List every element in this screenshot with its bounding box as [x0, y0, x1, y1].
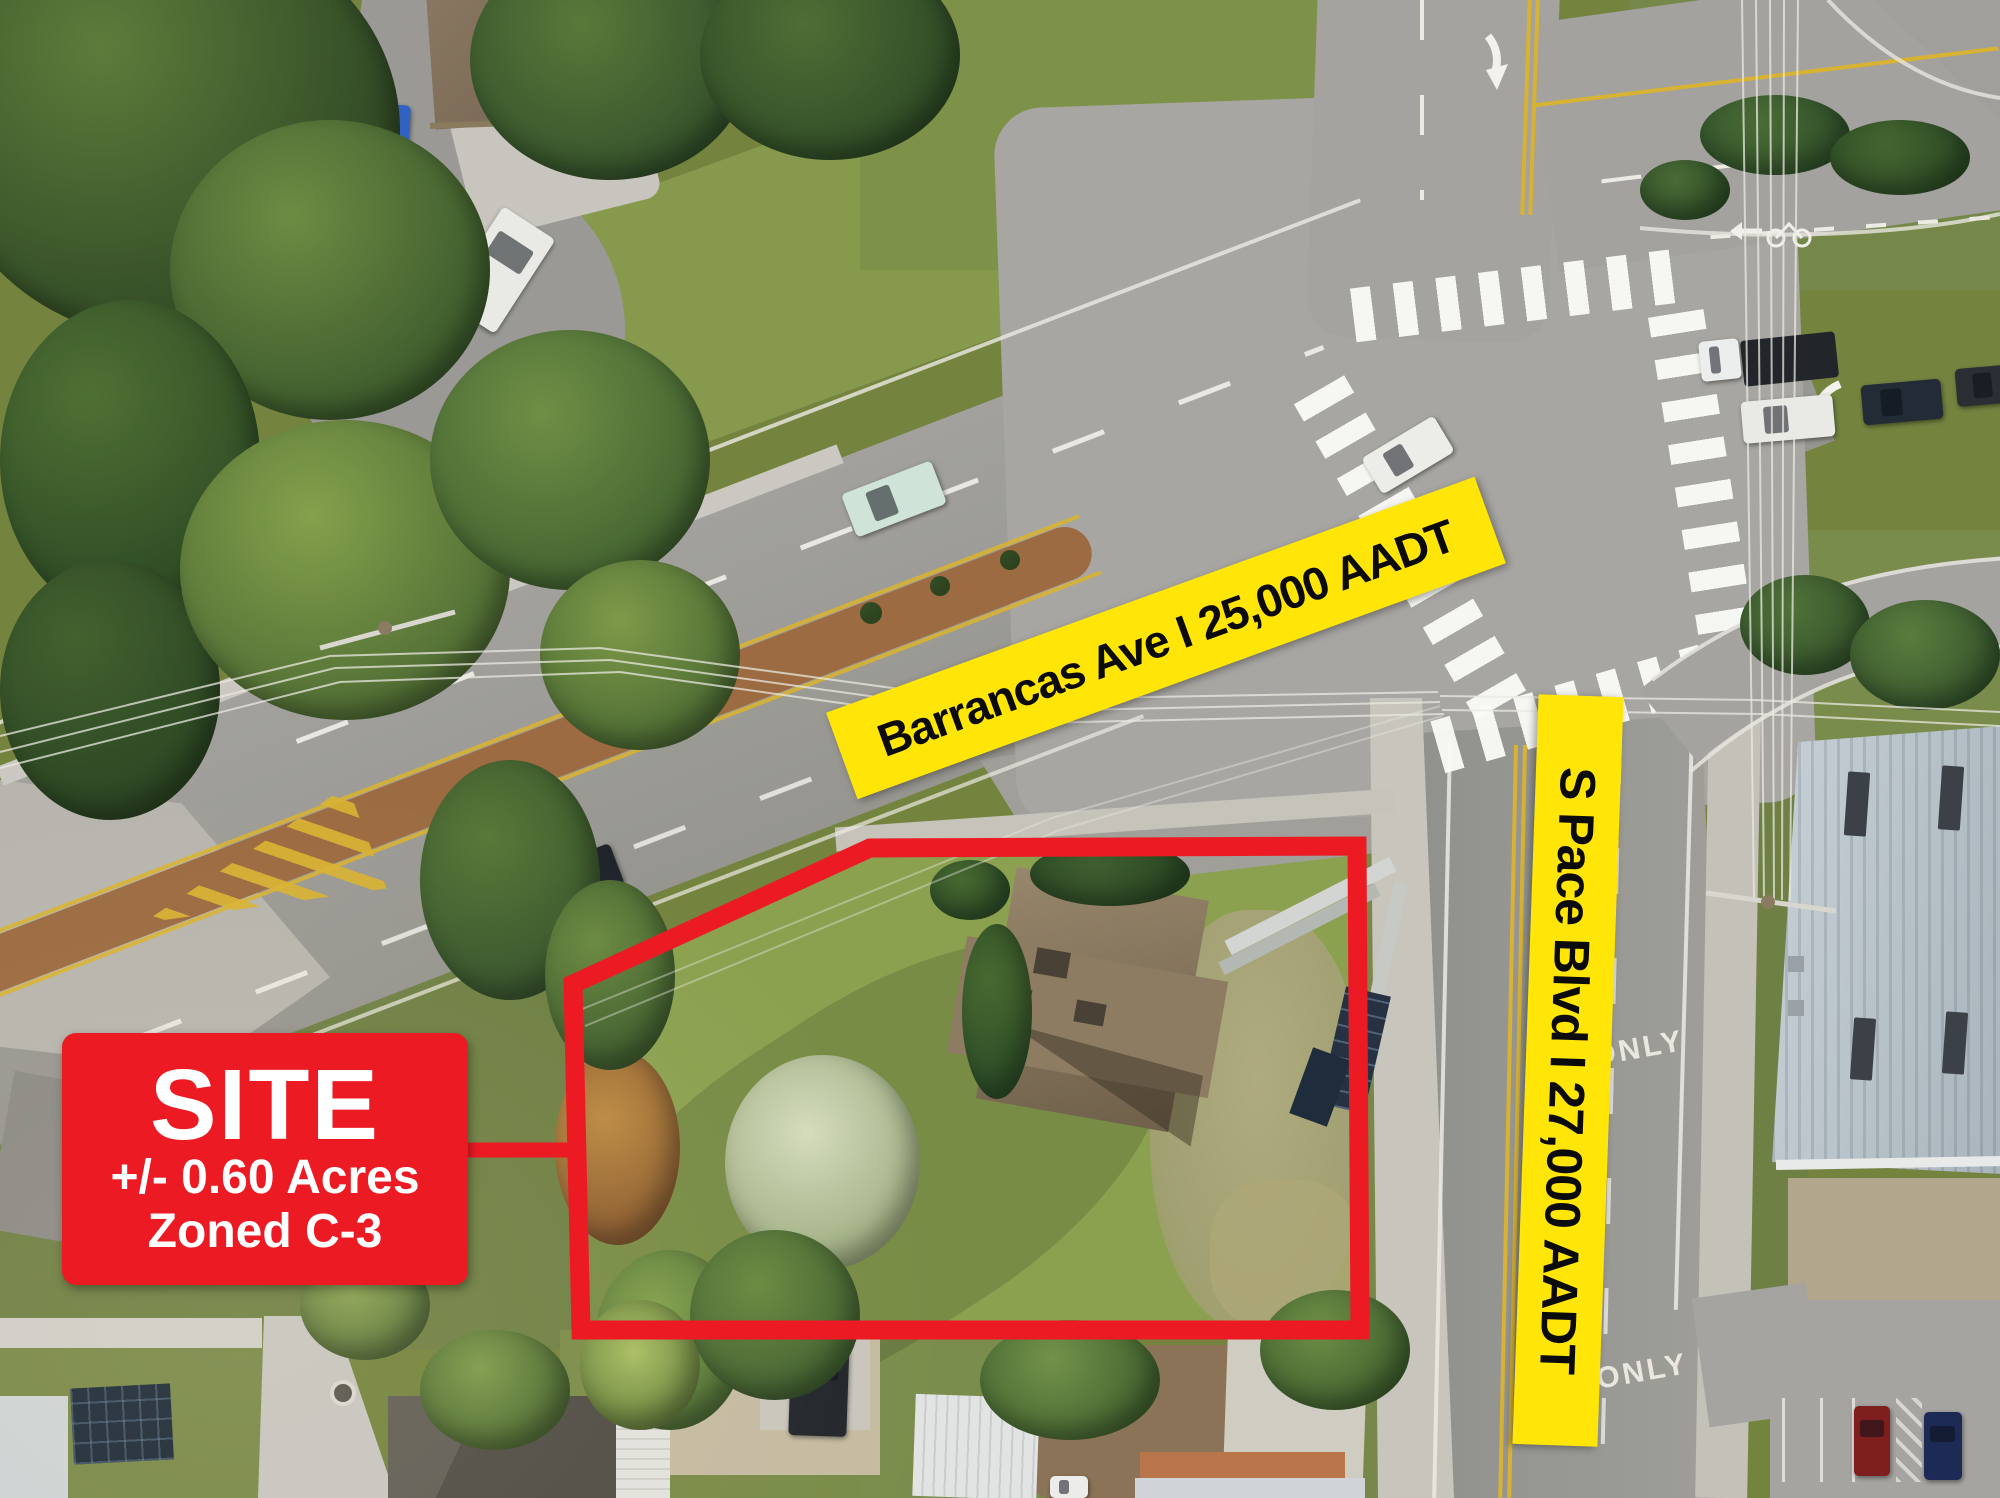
power-lines — [0, 0, 2000, 1026]
site-callout-zoning: Zoned C-3 — [148, 1205, 383, 1259]
aerial-site-photo: ONLY ONLY — [0, 0, 2000, 1498]
site-boundary — [464, 846, 1360, 1330]
road-label-pace-text: S Pace Blvd I 27,000 AADT — [1528, 766, 1607, 1374]
site-callout-acreage: +/- 0.60 Acres — [110, 1151, 419, 1205]
site-callout-title: SITE — [150, 1059, 380, 1151]
site-boundary-polygon — [573, 846, 1360, 1330]
site-callout: SITE +/- 0.60 Acres Zoned C-3 — [62, 1033, 468, 1285]
